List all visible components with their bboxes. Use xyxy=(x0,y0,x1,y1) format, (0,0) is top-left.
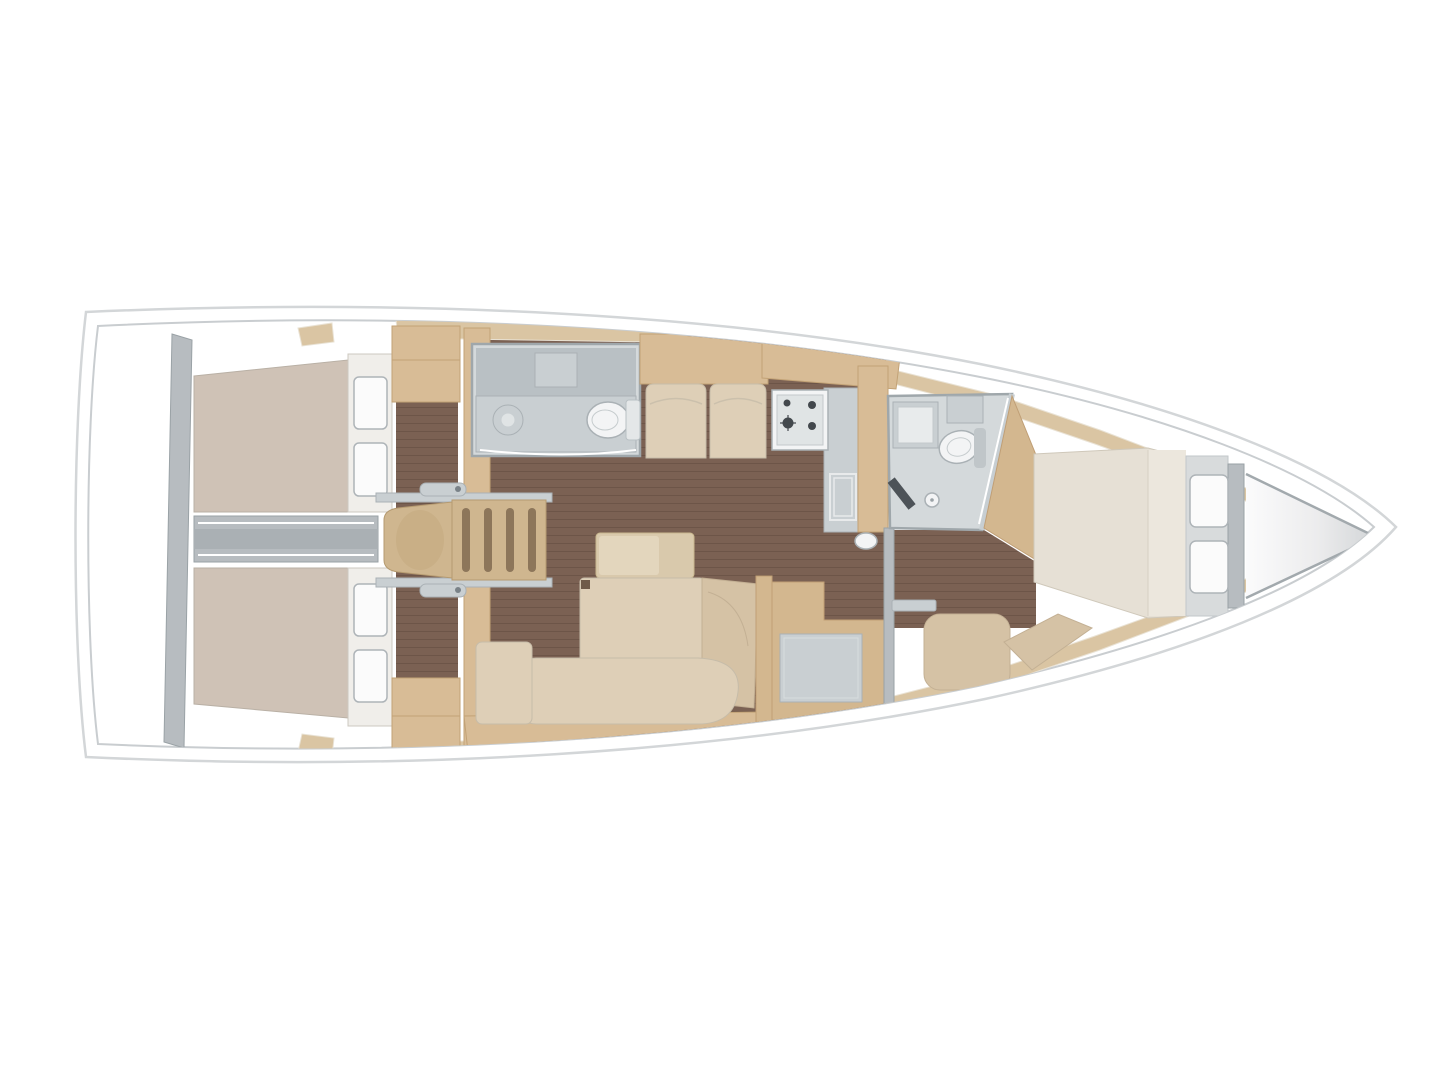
interior xyxy=(164,320,1376,760)
aft-berth-port-mattress xyxy=(194,360,348,512)
pillow xyxy=(1190,541,1228,593)
sofa-chaise xyxy=(580,578,704,668)
engine-box-center xyxy=(194,529,378,549)
settee-cushion xyxy=(710,384,766,458)
island-berth-head-section xyxy=(1148,450,1186,616)
head-aft-shelf xyxy=(535,353,577,387)
burner xyxy=(808,422,816,430)
burner xyxy=(808,401,816,409)
stair-tread-gap xyxy=(506,508,514,572)
stair-tread-gap xyxy=(462,508,470,572)
stair-tread-gap xyxy=(528,508,536,572)
washbasin-square-bowl xyxy=(898,407,933,443)
pillow xyxy=(354,650,387,702)
companionway-stairs xyxy=(376,483,552,597)
yacht-layout-diagram xyxy=(0,0,1440,1080)
pillow xyxy=(354,443,387,496)
burner xyxy=(784,400,791,407)
aft-cabin-port xyxy=(194,354,392,512)
galley-cabinet-forward xyxy=(858,366,888,532)
shower-drain-hole xyxy=(930,498,934,502)
floor-plan-canvas xyxy=(0,0,1440,1080)
forward-cabin-door xyxy=(892,600,936,611)
toilet-aft-tank xyxy=(626,400,640,440)
mirror-cabinet xyxy=(947,396,983,423)
stairs-landing-shade xyxy=(396,510,444,570)
shower-column xyxy=(974,428,986,468)
chart-table xyxy=(780,634,862,702)
handle-knob xyxy=(455,486,461,492)
washbasin-drain xyxy=(502,414,515,427)
head-aft xyxy=(472,344,640,456)
pillow xyxy=(1190,475,1228,527)
forward-bulkhead xyxy=(884,528,894,716)
sofa-chaise-corner xyxy=(581,580,590,589)
engine-box xyxy=(194,516,378,562)
sofa-bench xyxy=(522,658,738,724)
bow-bulkhead xyxy=(1228,464,1244,608)
pillow xyxy=(354,377,387,429)
toilet-aft xyxy=(587,402,629,438)
stair-tread-gap xyxy=(484,508,492,572)
salon-table-leaf xyxy=(599,536,659,575)
galley-sink xyxy=(855,533,877,549)
sofa-left-seat xyxy=(476,642,532,724)
settee-cushion xyxy=(646,384,706,458)
pillow xyxy=(354,584,387,636)
handle-knob xyxy=(455,587,461,593)
wardrobe-port xyxy=(392,326,460,402)
forward-seat xyxy=(924,614,1010,690)
aft-cabin-starboard xyxy=(194,568,392,726)
settee xyxy=(640,334,768,458)
aft-berth-starboard-mattress xyxy=(194,568,348,718)
